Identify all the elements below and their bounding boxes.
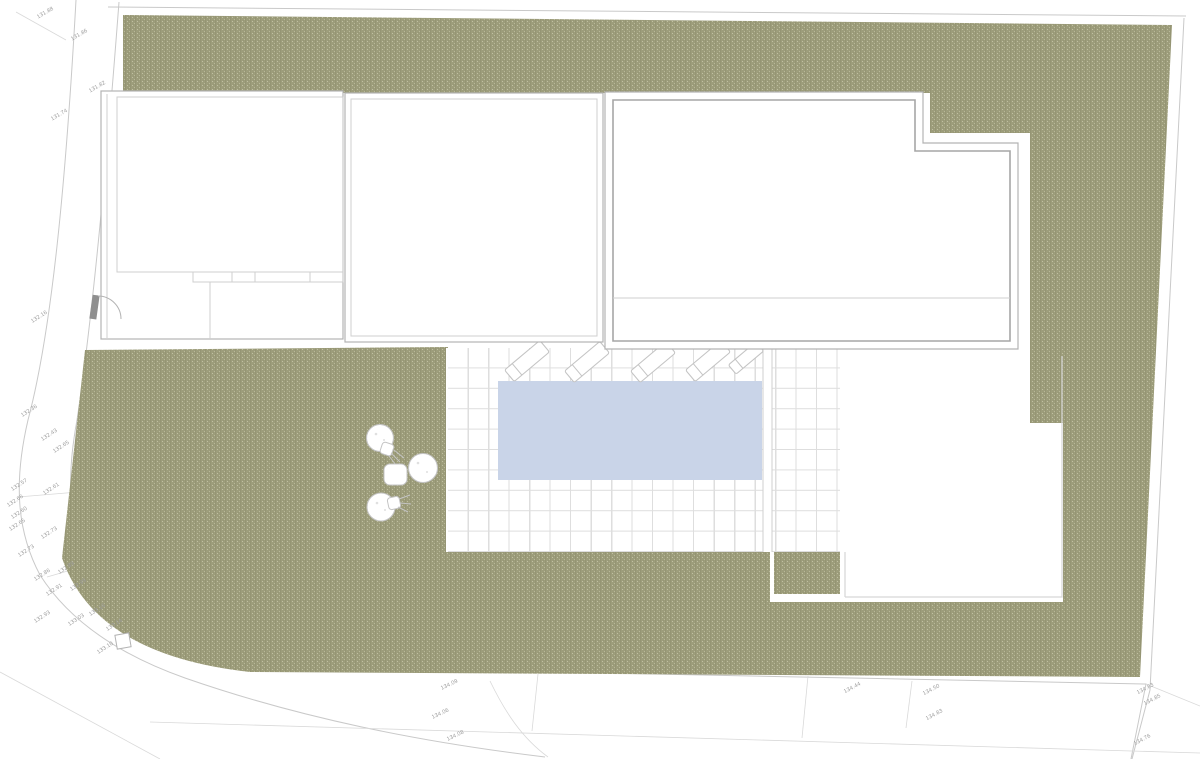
elevation-label: 134.08	[446, 730, 465, 743]
parcel-tick-5	[802, 676, 808, 738]
swimming-pool	[498, 381, 762, 480]
parcel-curve-line	[490, 681, 548, 757]
garden-patch	[774, 552, 840, 594]
elevation-label: 132.65	[52, 440, 71, 455]
elevation-label: 132.86	[33, 568, 52, 583]
utility-marker	[115, 633, 131, 649]
tree	[409, 454, 438, 483]
elevation-label: 132.16	[30, 310, 49, 325]
terrace-tiles-right	[772, 348, 840, 552]
parcel-tick-6	[906, 681, 912, 728]
garden-table	[384, 464, 407, 485]
elevation-label: 132.93	[33, 610, 52, 625]
elevation-label: 132.66	[6, 494, 25, 509]
elevation-label: 134.09	[440, 679, 459, 692]
elevation-label: 134.06	[431, 708, 450, 721]
patio-edge-lines	[845, 356, 1062, 597]
elevation-label: 132.73	[17, 544, 36, 559]
elevation-label: 134.83	[925, 708, 944, 722]
elevation-label: 132.73	[40, 526, 59, 541]
building-left	[101, 91, 343, 339]
elevation-label: 131.86	[70, 28, 89, 42]
elevation-label: 131.88	[36, 6, 55, 20]
bottom-road-line	[150, 722, 1200, 753]
elevation-label: 132.43	[40, 428, 59, 443]
site-plan-drawing: 131.88131.86131.82131.74132.16132.36132.…	[0, 0, 1200, 759]
elevation-label: 133.03	[67, 613, 86, 628]
building-middle	[345, 93, 603, 342]
gate-leaf	[89, 295, 99, 320]
elevation-label: 134.44	[843, 681, 862, 695]
elevation-label: 134.85	[1143, 693, 1162, 707]
site-plan-page: 131.88131.86131.82131.74132.16132.36132.…	[0, 0, 1200, 759]
elevation-label: 131.74	[50, 108, 69, 122]
bottom-corner-line	[0, 672, 160, 759]
elevation-label: 133.10	[96, 641, 115, 656]
elevation-label: 132.60	[10, 506, 29, 521]
elevation-label: 134.50	[922, 683, 941, 697]
parcel-tick-4	[532, 674, 538, 731]
top-boundary-line	[108, 7, 1186, 16]
